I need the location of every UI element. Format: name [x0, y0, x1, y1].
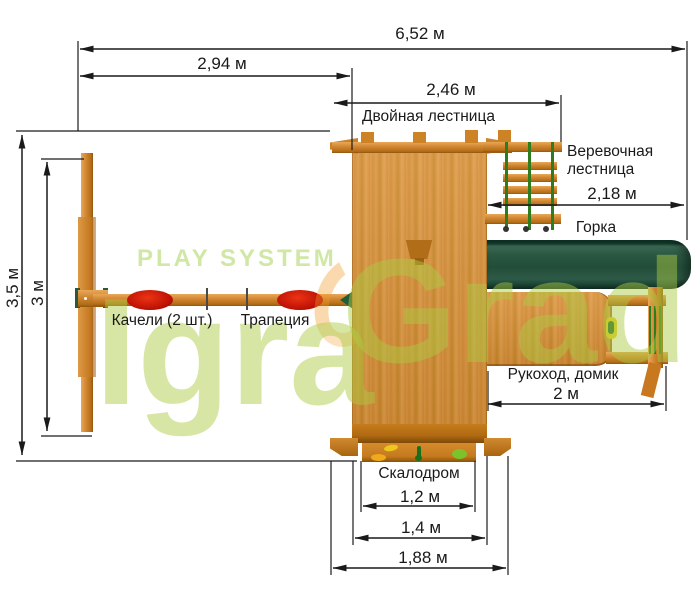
dim-overall-depth: 3,5 м — [3, 268, 23, 308]
dim-climbing-wall-outer: 1,4 м — [401, 518, 441, 538]
dim-swing-section-length: 2,94 м — [197, 54, 247, 74]
label-trapeze: Трапеция — [241, 312, 310, 330]
label-double-ladder: Двойная лестница — [362, 108, 495, 126]
dim-overall-length: 6,52 м — [395, 24, 445, 44]
label-rope-ladder: Веревочная лестница — [567, 143, 675, 180]
dim-double-ladder-length: 2,46 м — [426, 80, 476, 100]
label-climbing-wall: Скалодром — [378, 465, 459, 483]
dim-rope-ladder-slide: 2,18 м — [587, 184, 637, 204]
dim-climbing-wall-width: 1,2 м — [400, 487, 440, 507]
label-slide: Горка — [576, 219, 616, 237]
playground-plan-diagram: PLAY SYSTEM Igra Grad — [0, 0, 700, 606]
label-swings: Качели (2 шт.) — [112, 312, 213, 330]
dim-monkey-bars-length: 2 м — [553, 384, 579, 404]
labels-layer: 6,52 м 2,94 м 2,46 м Двойная лестница Ве… — [0, 0, 700, 606]
dim-platform-width: 1,88 м — [398, 548, 448, 568]
label-monkey-bars-house: Рукоход, домик — [508, 366, 619, 384]
dim-swing-frame-depth: 3 м — [28, 280, 48, 306]
